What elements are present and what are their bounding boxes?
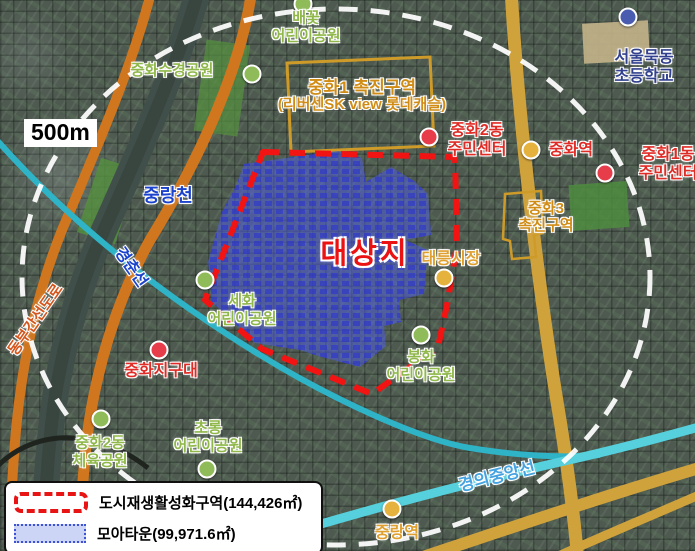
seoul-mukdong-elementary-school-dot[interactable] [619, 8, 638, 27]
jungnangcheon-stream-label: 중랑천 [143, 185, 193, 206]
poi-markers-layer: 배꽃어린이공원중화수경공원서울묵동초등학교중화2동주민센터중화역중화1동주민센터… [0, 0, 695, 551]
legend-row-moatown: 모아타운(99,971.6㎡) [14, 520, 313, 547]
junghwa2dong-sports-park-label: 중화2동체육공원 [72, 434, 127, 469]
junghwa2dong-community-center-dot[interactable] [420, 128, 439, 147]
dongbu-expressway-label: 동부간선도로 [5, 281, 67, 359]
chorong-childrens-park-label: 초롱어린이공원 [173, 419, 242, 454]
junghwa1dong-community-center-label: 중화1동주민센터 [639, 146, 695, 184]
legend: 도시재생활성화구역(144,426㎡) 모아타운(99,971.6㎡) [4, 481, 323, 551]
gyeongchun-line-label: 경춘선 [110, 244, 151, 291]
baekkot-childrens-park-label: 배꽃어린이공원 [271, 9, 340, 44]
red-dashed-swatch [14, 492, 88, 513]
legend-label-regeneration: 도시재생활성화구역(144,426㎡) [99, 492, 302, 513]
sehwa-childrens-park-dot[interactable] [196, 271, 215, 290]
junghwa-police-substation-label: 중화지구대 [124, 363, 198, 382]
legend-label-moatown: 모아타운(99,971.6㎡) [97, 523, 236, 544]
bonghwa-childrens-park-label: 봉화어린이공원 [386, 348, 455, 383]
bonghwa-childrens-park-dot[interactable] [412, 326, 431, 345]
target-site-label: 대상지 [320, 230, 409, 272]
sehwa-childrens-park-label: 세화어린이공원 [207, 292, 276, 327]
taereung-market-dot[interactable] [435, 269, 454, 288]
jungnang-station-label: 중랑역 [375, 525, 419, 544]
junghwa-sugyeong-park-dot[interactable] [243, 65, 262, 84]
scale-label: 500m [24, 119, 97, 147]
seoul-mukdong-elementary-school-label: 서울묵동초등학교 [615, 49, 674, 87]
junghwa-sugyeong-park-label: 중화수경공원 [131, 62, 214, 80]
junghwa-station-dot[interactable] [522, 141, 541, 160]
junghwa2dong-community-center-label: 중화2동주민센터 [448, 122, 507, 160]
chorong-childrens-park-dot[interactable] [198, 460, 217, 479]
taereung-market-label: 태릉시장 [422, 251, 481, 270]
junghwa-police-substation-dot[interactable] [150, 341, 169, 360]
junghwa-station-label: 중화역 [549, 142, 593, 161]
junghwa2dong-sports-park-dot[interactable] [92, 410, 111, 429]
legend-row-regeneration: 도시재생활성화구역(144,426㎡) [14, 489, 313, 516]
junghwa1-promotion-zone-label: 중화1 촉진구역(리버센SK view 롯데캐슬) [278, 78, 446, 114]
junghwa1dong-community-center-dot[interactable] [596, 164, 615, 183]
map-figure: 배꽃어린이공원중화수경공원서울묵동초등학교중화2동주민센터중화역중화1동주민센터… [0, 0, 695, 551]
jungnang-station-dot[interactable] [383, 500, 402, 519]
junghwa3-promotion-zone-label: 중화3촉진구역 [518, 201, 573, 235]
blue-fill-swatch [14, 524, 86, 543]
gyeongui-jungang-line-label: 경의중앙선 [457, 458, 538, 496]
